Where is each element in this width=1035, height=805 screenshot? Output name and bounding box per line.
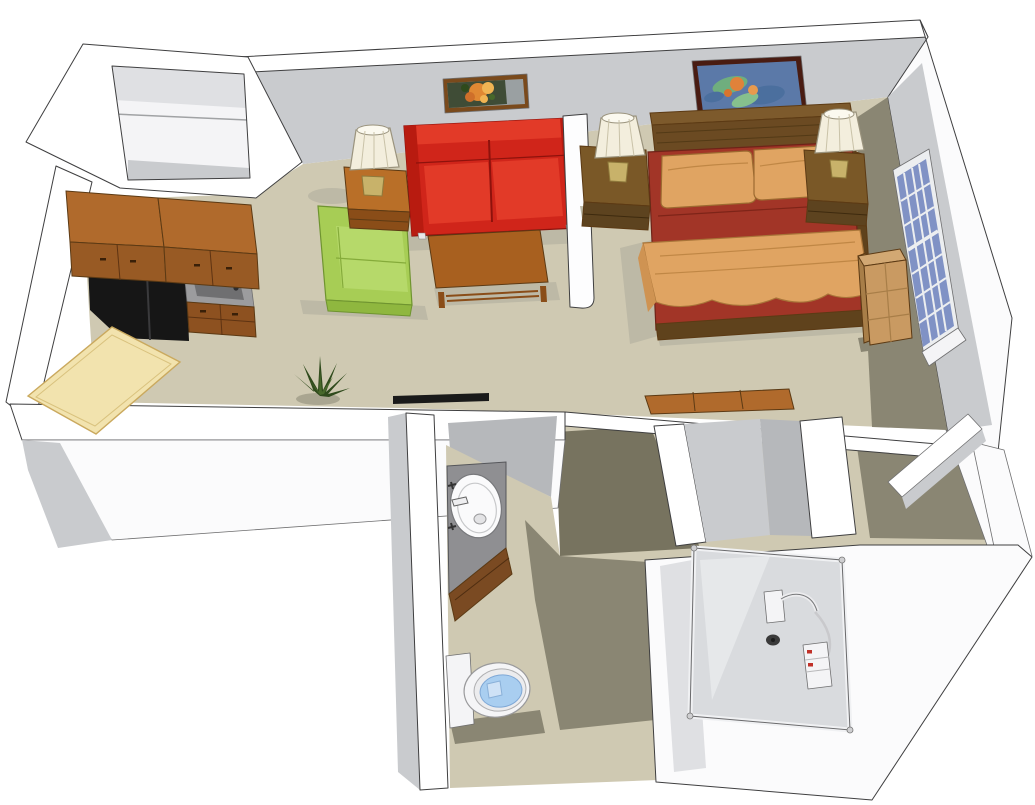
painting2-flower	[724, 89, 732, 97]
painting2-flower	[730, 77, 744, 91]
floorplan-svg	[0, 0, 1035, 805]
painting-flower	[480, 95, 488, 103]
painting-flower	[465, 92, 475, 102]
glass-corner-post	[691, 545, 697, 551]
drawer-handle	[200, 310, 206, 313]
pillow-left	[661, 151, 756, 208]
lamp-base	[608, 162, 628, 182]
cabinet-handle	[100, 258, 106, 261]
caddy-bottle-red	[807, 650, 812, 654]
coffee-table-top	[428, 230, 548, 288]
floor-drain-hole	[771, 638, 775, 642]
painting2-flower	[748, 85, 758, 95]
sink-drain	[474, 514, 486, 524]
caddy-body	[803, 642, 832, 689]
glass-corner-post	[847, 727, 853, 733]
painting-flower	[482, 82, 494, 94]
upper-cabinets	[66, 191, 259, 289]
lamp-base	[362, 176, 384, 196]
floorplan-canvas	[0, 0, 1035, 805]
caddy-bottle-red	[808, 663, 813, 667]
nightstand-left	[580, 146, 650, 230]
painting-leaf	[461, 84, 469, 92]
toilet-water-glint	[487, 681, 502, 698]
sofa-seat-cushion	[492, 158, 563, 220]
sofa-seat-cushion	[424, 162, 493, 224]
painting-leaf	[489, 94, 495, 100]
shower-head-plate	[764, 590, 785, 623]
flower-painting	[443, 74, 529, 113]
lower-cabinets	[187, 302, 256, 337]
lamp-base	[830, 160, 848, 178]
sofa-foot	[418, 233, 426, 239]
lamp-shade-top	[357, 125, 389, 135]
coffee-table-leg	[438, 292, 445, 308]
cabinet-top-right	[158, 198, 257, 254]
coffee-table-leg	[540, 286, 547, 302]
cabinet-handle	[226, 267, 232, 270]
sofa	[404, 118, 578, 239]
glass-corner-post	[687, 713, 693, 719]
glass-corner-post	[839, 557, 845, 563]
drawer-handle	[232, 313, 238, 316]
cabinet-top-left	[66, 191, 164, 247]
cabinet-handle	[194, 264, 200, 267]
cabinet-handle	[130, 260, 136, 263]
shower-caddy	[803, 642, 832, 689]
